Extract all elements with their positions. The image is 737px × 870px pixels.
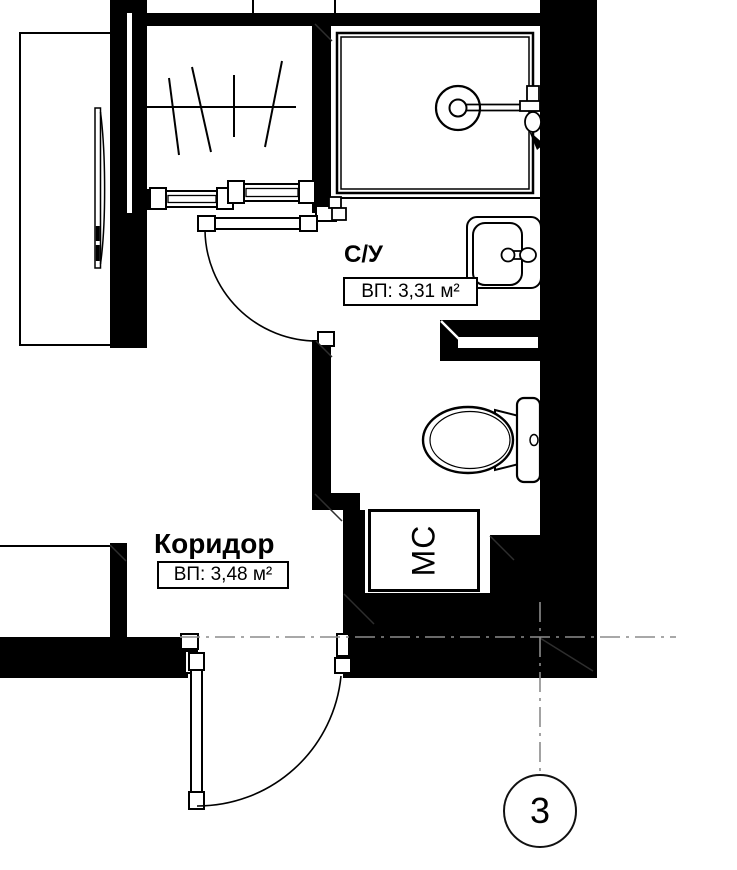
area-value-bathroom: ВП: 3,31 м² — [361, 281, 460, 303]
shower-mixer-icon — [436, 86, 544, 150]
area-box-corridor: ВП: 3,48 м² — [157, 561, 289, 589]
entrance-door — [181, 634, 351, 809]
axis-number: 3 — [530, 790, 550, 832]
door-jamb — [335, 658, 351, 673]
sliding-wardrobe-doors — [139, 181, 315, 210]
bathroom-door — [198, 206, 336, 346]
fixtures-layer — [0, 0, 737, 870]
wardrobe-hangers-icon — [147, 61, 296, 155]
washbasin-icon — [467, 217, 541, 288]
washing-machine: МС — [368, 509, 480, 592]
door-jamb — [318, 332, 334, 346]
mirror-panel-icon — [95, 108, 105, 268]
room-label-corridor: Коридор — [154, 528, 275, 560]
area-box-bathroom: ВП: 3,31 м² — [343, 277, 478, 306]
shower-door-bracket — [332, 208, 346, 220]
washing-machine-label: МС — [405, 525, 442, 577]
axis-marker: 3 — [503, 774, 577, 848]
floor-plan: С/У ВП: 3,31 м² Коридор ВП: 3,48 м² МС 3 — [0, 0, 737, 870]
room-label-bathroom: С/У — [344, 241, 383, 269]
door-leaf — [191, 655, 202, 807]
door-swing — [197, 676, 341, 806]
axis-lines — [180, 602, 676, 773]
shower-door-bracket — [329, 197, 341, 208]
vent-duct-icon — [440, 320, 540, 361]
toilet-icon — [423, 398, 540, 482]
area-value-corridor: ВП: 3,48 м² — [174, 564, 273, 586]
shower-tray — [337, 33, 533, 193]
door-swing — [205, 230, 317, 341]
